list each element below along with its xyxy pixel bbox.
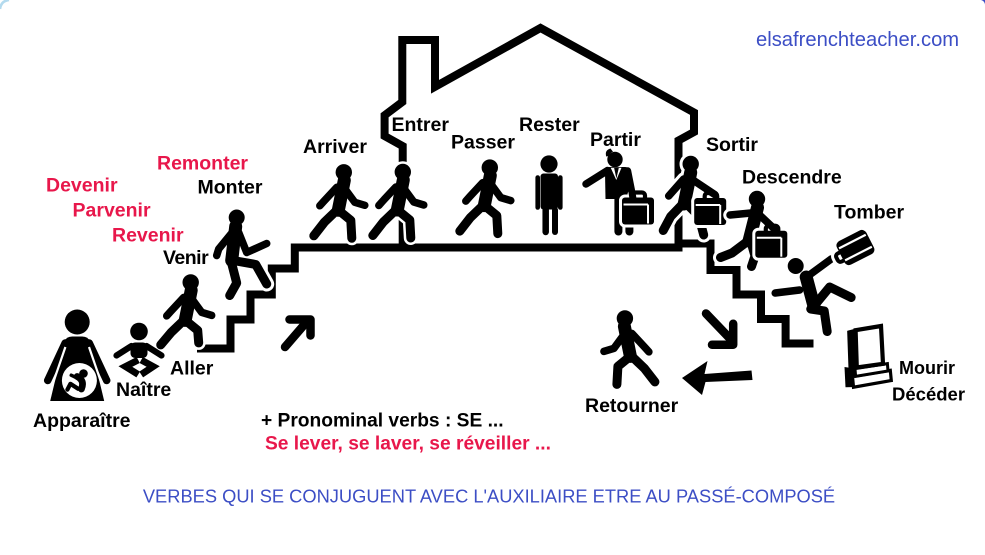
svg-text:VERBES QUI SE CONJUGUENT AVEC: VERBES QUI SE CONJUGUENT AVEC L'AUXILIAI…	[143, 486, 835, 507]
svg-text:Se lever, se laver, se réveill: Se lever, se laver, se réveiller ...	[265, 434, 551, 455]
svg-text:Aller: Aller	[170, 358, 214, 380]
svg-text:elsafrenchteacher.com: elsafrenchteacher.com	[756, 29, 959, 51]
svg-text:Revenir: Revenir	[112, 225, 184, 247]
svg-text:Venir: Venir	[163, 247, 209, 269]
svg-text:Retourner: Retourner	[585, 395, 679, 417]
svg-text:Mourir: Mourir	[899, 358, 955, 378]
svg-text:Monter: Monter	[198, 177, 263, 199]
svg-text:Arriver: Arriver	[303, 136, 367, 158]
svg-text:Rester: Rester	[519, 114, 580, 136]
svg-text:Parvenir: Parvenir	[73, 200, 151, 222]
svg-text:Apparaître: Apparaître	[33, 410, 131, 432]
svg-text:Devenir: Devenir	[46, 175, 118, 197]
svg-text:+ Pronominal verbs : SE ...: + Pronominal verbs : SE ...	[261, 411, 504, 432]
svg-text:Décéder: Décéder	[892, 384, 965, 405]
svg-text:Entrer: Entrer	[392, 114, 450, 136]
svg-text:Partir: Partir	[590, 129, 641, 151]
svg-text:Remonter: Remonter	[157, 153, 248, 175]
svg-text:Tomber: Tomber	[834, 202, 904, 224]
svg-text:Naître: Naître	[116, 379, 171, 401]
svg-text:Sortir: Sortir	[706, 134, 758, 156]
svg-text:Descendre: Descendre	[742, 167, 842, 189]
svg-text:Passer: Passer	[451, 132, 515, 154]
